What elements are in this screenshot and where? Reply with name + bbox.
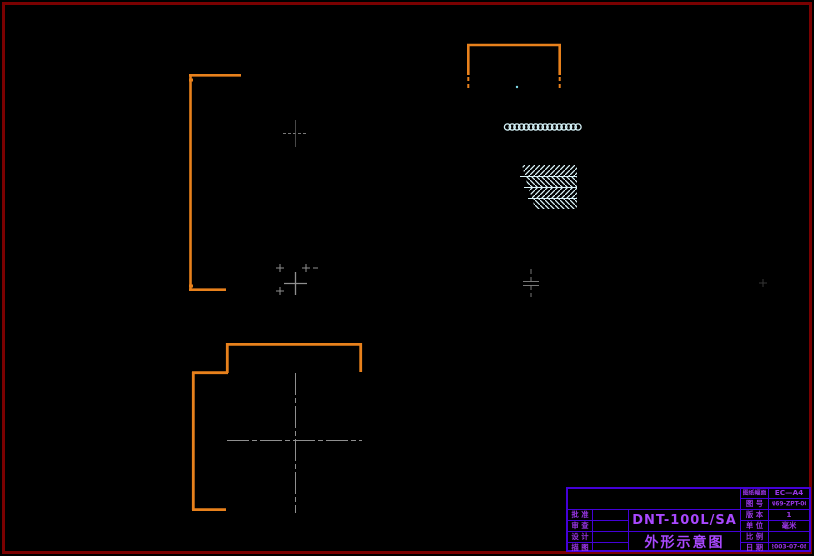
center-mark-cluster bbox=[276, 264, 318, 295]
cad-canvas: 批 准 审 查 设 计 描 图 DNT-100L/SA 外形示意图 图纸幅面 图… bbox=[0, 0, 814, 556]
tb-value-version: 1 bbox=[771, 509, 808, 519]
base-outline bbox=[192, 343, 362, 510]
base-crosshair bbox=[227, 373, 362, 513]
tb-value-drawing-no: DN69-ZPT-001 bbox=[772, 499, 806, 508]
tb-value-unit: 毫米 bbox=[771, 520, 808, 530]
center-dot bbox=[516, 86, 518, 88]
tb-label-approve: 批 准 bbox=[569, 509, 591, 519]
tb-value-scale bbox=[771, 531, 808, 541]
center-mark-upper bbox=[283, 120, 308, 147]
center-mark-faint bbox=[759, 279, 767, 287]
tb-value-sheet-size: EC—A4 bbox=[771, 487, 808, 497]
tb-label-scale: 比 例 bbox=[742, 531, 767, 541]
drawing-area bbox=[0, 0, 814, 556]
top-cover-outline bbox=[467, 44, 561, 88]
tb-label-drawing-no: 图 号 bbox=[742, 498, 767, 508]
tb-value-date: 2003-07-08 bbox=[772, 543, 806, 552]
tb-label-unit: 单 位 bbox=[742, 520, 767, 530]
sheet-border bbox=[4, 4, 811, 553]
tb-label-review: 审 查 bbox=[569, 520, 591, 530]
tb-label-design: 设 计 bbox=[569, 531, 591, 541]
hatched-block bbox=[520, 165, 577, 209]
terminal-circles bbox=[504, 124, 581, 130]
center-mark-right bbox=[523, 269, 539, 297]
tb-model-number: DNT-100L/SA bbox=[629, 509, 740, 531]
tb-label-sheet-size: 图纸幅面 bbox=[743, 488, 766, 497]
tb-label-date: 日 期 bbox=[742, 542, 767, 551]
tb-label-draft: 描 图 bbox=[569, 542, 591, 552]
tb-label-version: 版 本 bbox=[742, 509, 767, 519]
tb-drawing-title: 外形示意图 bbox=[629, 531, 740, 552]
side-profile-outline bbox=[189, 74, 241, 291]
title-block: 批 准 审 查 设 计 描 图 DNT-100L/SA 外形示意图 图纸幅面 图… bbox=[566, 487, 811, 552]
